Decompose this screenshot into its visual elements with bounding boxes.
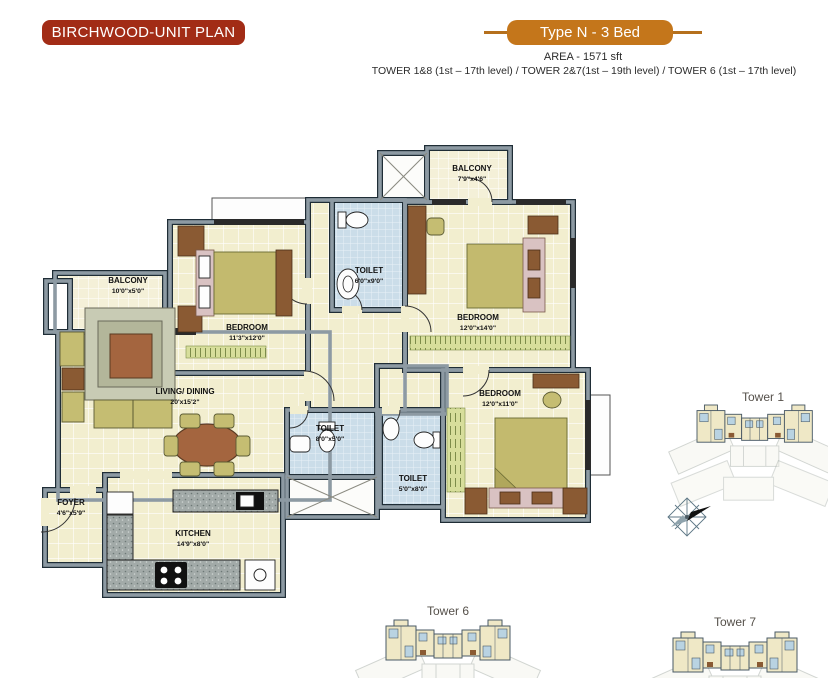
tower-7-label: Tower 7 — [714, 615, 756, 629]
room-dims-toilet2: 8'0"x5'0" — [316, 436, 345, 443]
tower-7-diagram: Tower 7 — [643, 615, 828, 678]
room-dims-toilet3: 5'0"x8'0" — [399, 486, 428, 493]
room-dims-balcony-top: 7'9"x4'6" — [458, 176, 487, 183]
tower-1-diagram: Tower 1 — [669, 390, 828, 506]
room-label-balcony-left: BALCONY — [108, 276, 148, 285]
room-label-balcony-top: BALCONY — [452, 164, 492, 173]
room-label-bedroom3: BEDROOM — [479, 389, 521, 398]
room-dims-bedroom2: 12'0"x14'0" — [460, 325, 496, 332]
room-dims-kitchen: 14'9"x8'0" — [177, 541, 209, 548]
room-dims-bedroom3: 12'0"x11'0" — [482, 401, 518, 408]
room-label-bedroom1: BEDROOM — [226, 323, 268, 332]
room-label-foyer: FOYER — [57, 498, 85, 507]
room-label-living: LIVING/ DINING — [155, 387, 214, 396]
tower-6-label: Tower 6 — [427, 604, 469, 618]
floor-plan: BALCONY 10'0"x5'0" BEDROOM 11'3"x12'0" T… — [41, 148, 610, 595]
room-label-kitchen: KITCHEN — [175, 529, 211, 538]
room-label-bedroom2: BEDROOM — [457, 313, 499, 322]
unit-plan-page: BIRCHWOOD-UNIT PLAN Type N - 3 Bed AREA … — [0, 0, 828, 678]
room-label-toilet1: TOILET — [355, 266, 383, 275]
room-dims-living: 20'x15'2" — [170, 399, 199, 406]
room-dims-toilet1: 6'0"x9'0" — [355, 278, 384, 285]
floor-plan-svg: BALCONY 10'0"x5'0" BEDROOM 11'3"x12'0" T… — [0, 0, 828, 678]
room-dims-balcony-left: 10'0"x5'0" — [112, 288, 144, 295]
room-label-toilet3: TOILET — [399, 474, 427, 483]
tower-1-label: Tower 1 — [742, 390, 784, 404]
room-dims-bedroom1: 11'3"x12'0" — [229, 335, 265, 342]
tower-6-diagram: Tower 6 — [356, 604, 541, 678]
room-label-toilet2: TOILET — [316, 424, 344, 433]
compass-icon — [668, 498, 711, 536]
room-dims-foyer: 4'6"x5'9" — [57, 510, 86, 517]
